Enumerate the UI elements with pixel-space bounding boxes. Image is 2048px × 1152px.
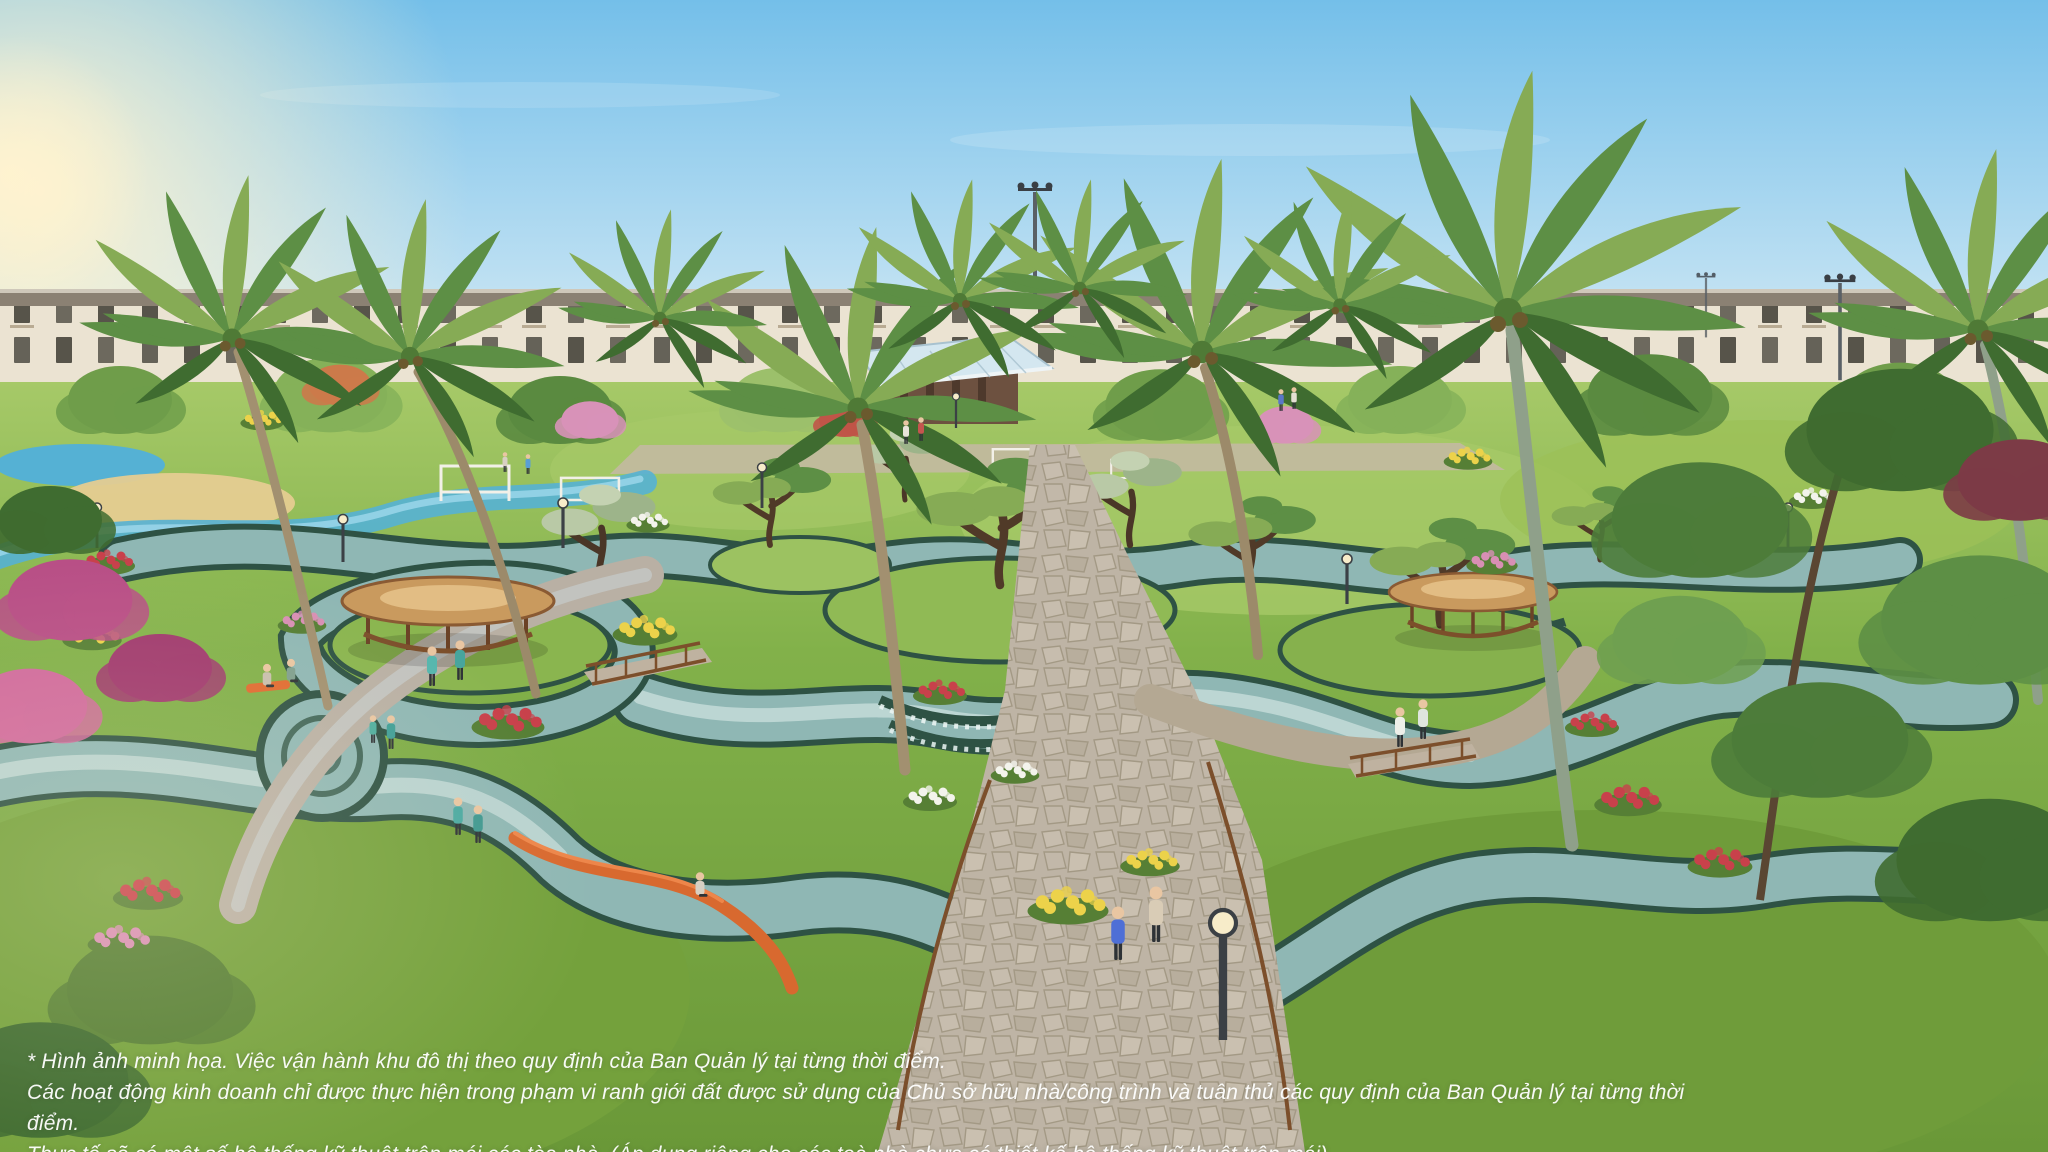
cloud-streak: [950, 124, 1550, 156]
park-rendering: [0, 0, 2048, 1152]
rendering-canvas: * Hình ảnh minh họa. Việc vận hành khu đ…: [0, 0, 2048, 1152]
